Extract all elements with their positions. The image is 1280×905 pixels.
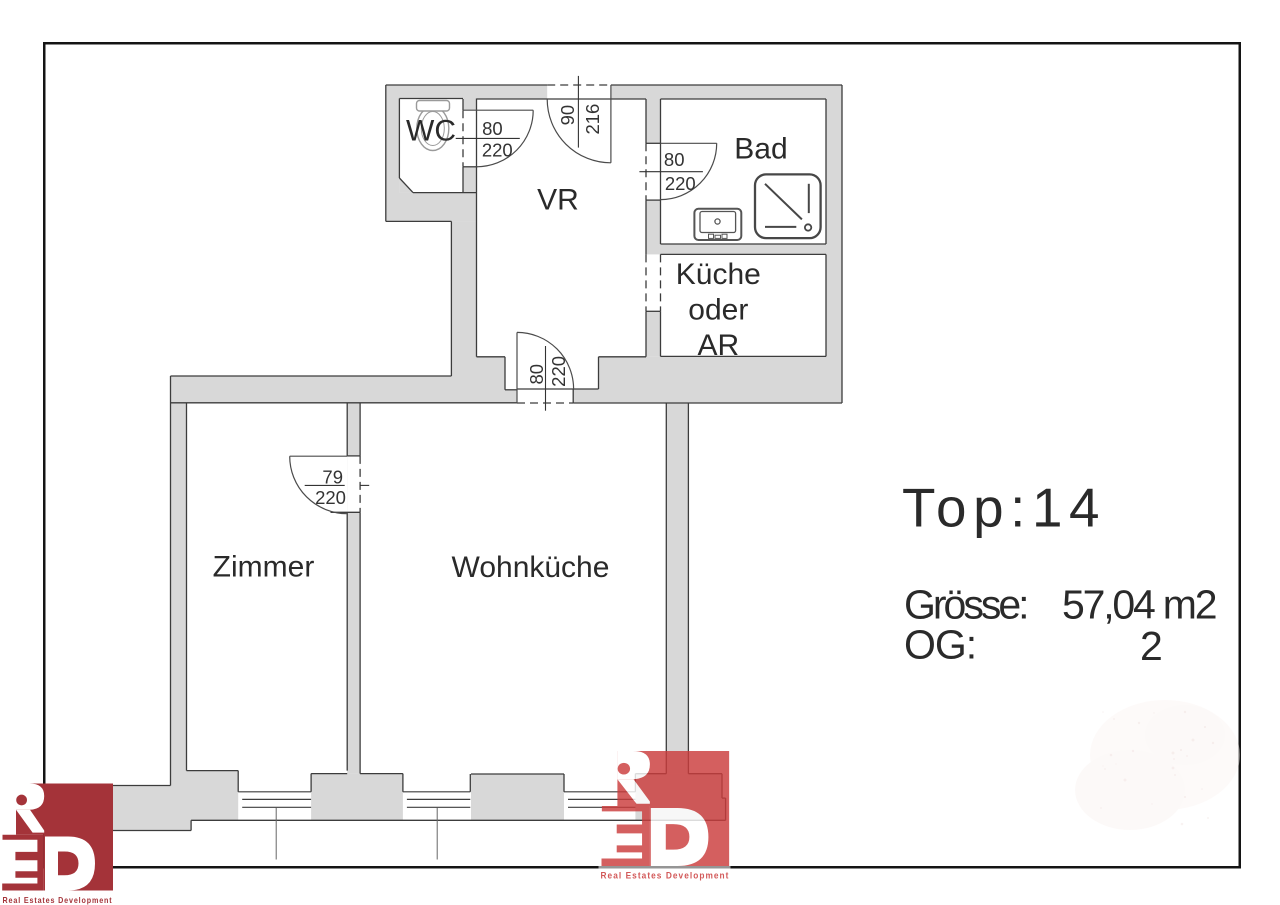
- svg-text:AR: AR: [697, 329, 739, 362]
- svg-text:oder: oder: [688, 294, 748, 327]
- svg-text:VR: VR: [537, 184, 579, 217]
- svg-text:Zimmer: Zimmer: [213, 551, 315, 584]
- svg-text:WC: WC: [406, 115, 456, 148]
- svg-text:Wohnküche: Wohnküche: [452, 551, 610, 584]
- svg-text:Küche: Küche: [676, 258, 761, 291]
- svg-text:80: 80: [664, 149, 685, 170]
- svg-text:80: 80: [482, 118, 503, 139]
- svg-text:OG:: OG:: [904, 622, 976, 668]
- svg-text:57,04 m2: 57,04 m2: [1062, 582, 1216, 628]
- svg-text:Real Estates Development: Real Estates Development: [601, 871, 730, 882]
- svg-text:Bad: Bad: [734, 132, 787, 165]
- svg-text:220: 220: [548, 356, 569, 387]
- svg-text:79: 79: [322, 466, 343, 487]
- svg-text:80: 80: [526, 364, 547, 385]
- svg-text:216: 216: [582, 104, 603, 135]
- svg-text:90: 90: [557, 105, 578, 126]
- svg-text:220: 220: [482, 140, 513, 161]
- svg-text:Top:14: Top:14: [902, 477, 1106, 539]
- svg-text:220: 220: [315, 487, 346, 508]
- svg-text:220: 220: [665, 173, 696, 194]
- svg-text:Real Estates Development: Real Estates Development: [3, 895, 113, 905]
- svg-text:2: 2: [1140, 623, 1163, 669]
